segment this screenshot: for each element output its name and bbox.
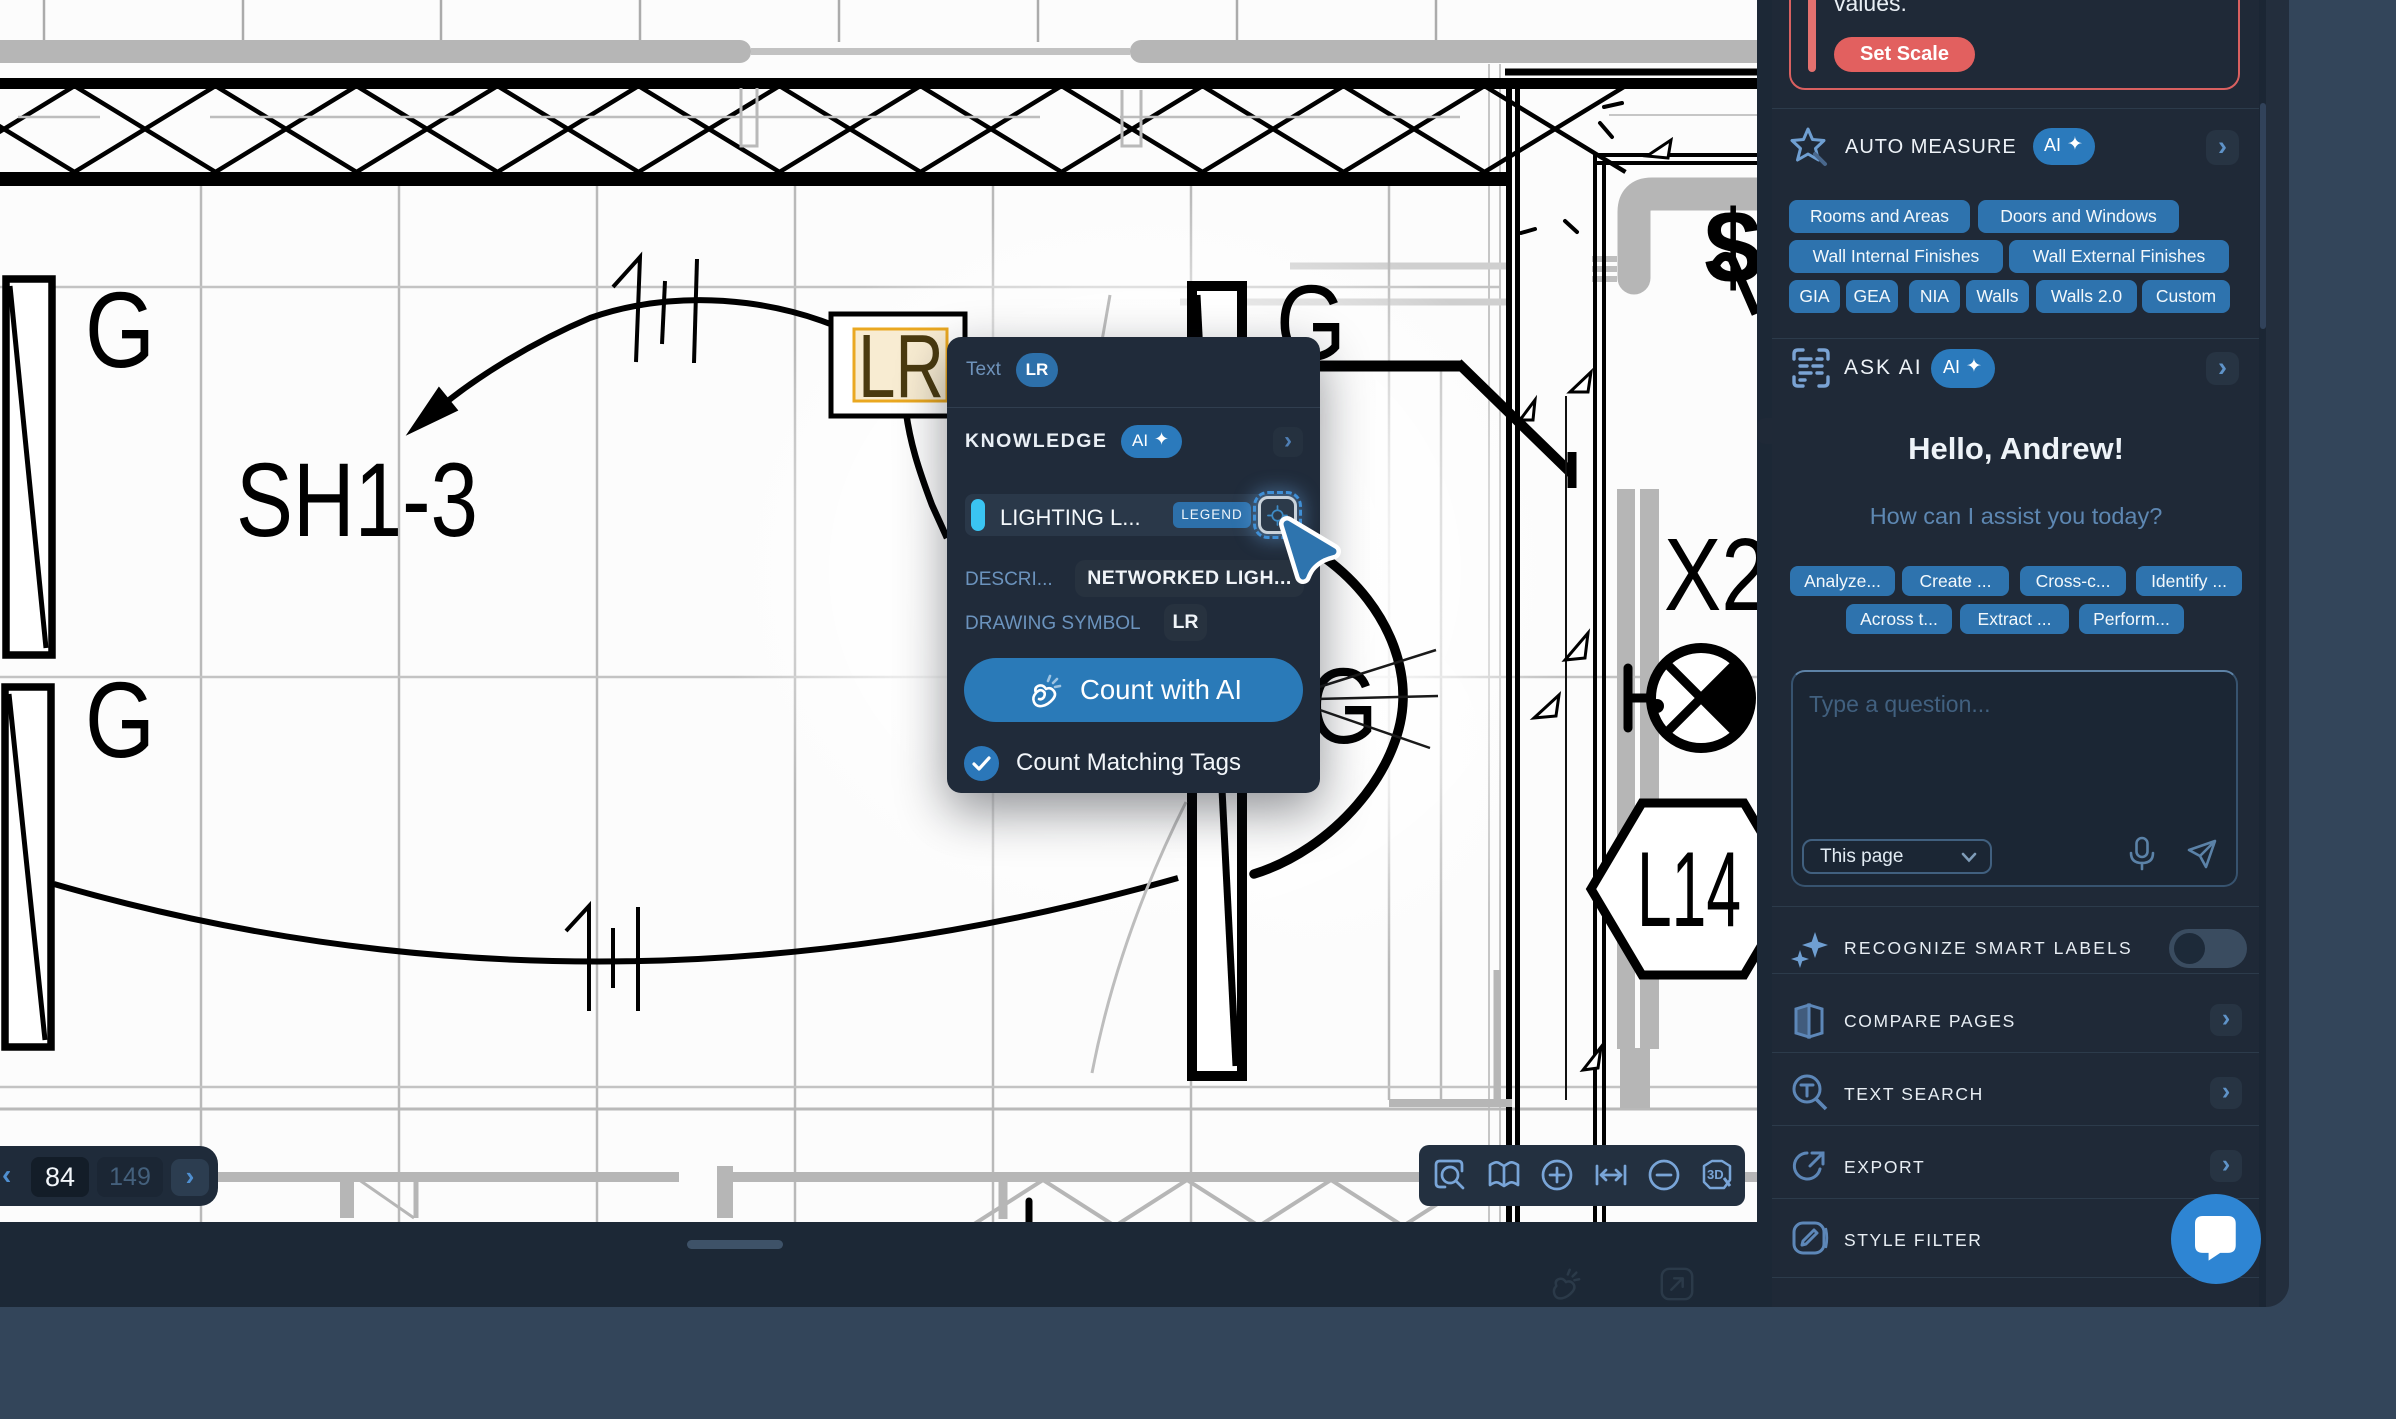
svg-text:G: G xyxy=(85,659,155,780)
svg-text:LR: LR xyxy=(858,317,944,417)
svg-text:3D: 3D xyxy=(1707,1167,1724,1182)
svg-text:L14: L14 xyxy=(1637,829,1741,949)
svg-text:SH1-3: SH1-3 xyxy=(236,442,478,559)
svg-text:G: G xyxy=(85,269,155,390)
svg-text:X2: X2 xyxy=(1664,517,1757,632)
